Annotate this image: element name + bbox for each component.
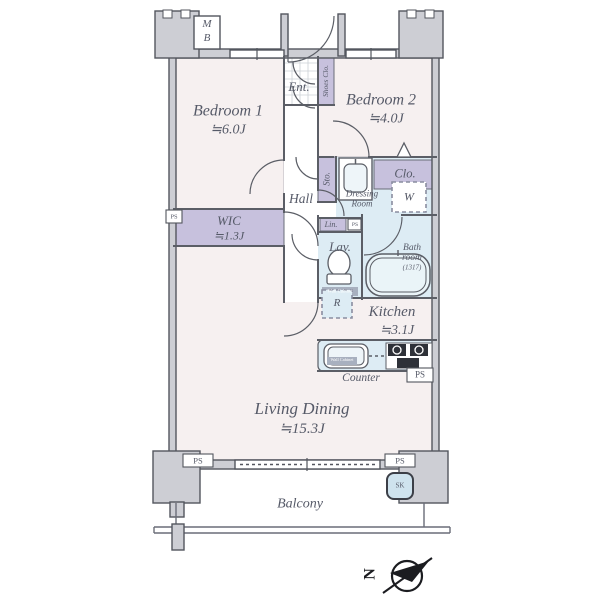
bathroom-size: (1317) xyxy=(403,264,422,271)
bedroom2-size: ≒4.0J xyxy=(368,113,403,128)
wic-name: WIC xyxy=(217,214,241,228)
wall-east xyxy=(432,49,439,469)
slop-sink-label: SK xyxy=(396,482,405,489)
toilet-tank xyxy=(327,274,351,284)
stove-grill xyxy=(397,358,419,368)
hall-label: Hall xyxy=(289,192,313,206)
meter-box-label-m: M xyxy=(202,19,211,31)
counter-label: Counter xyxy=(342,372,380,384)
living-dining-size: ≒15.3J xyxy=(279,422,325,438)
dressing-room-label-2: Room xyxy=(352,199,373,208)
compass-north-icon xyxy=(383,558,432,593)
fridge-label: R xyxy=(334,298,341,310)
wall-west xyxy=(169,49,176,469)
pillar-top-right xyxy=(399,11,443,58)
wic-size: ≒1.3J xyxy=(214,230,244,243)
ps-label-lin: PS xyxy=(351,222,357,228)
entrance-label: Ent. xyxy=(288,80,309,94)
shoes-closet-label: Shoes Clo. xyxy=(322,65,330,97)
ps-label-wic: PS xyxy=(170,213,177,220)
lav-wall-cabinet-label: Wall Cabinet xyxy=(327,289,352,294)
ps-label-bottom-left: PS xyxy=(193,456,202,465)
storage-label: Sto. xyxy=(322,172,331,186)
wall-north xyxy=(170,49,438,58)
closet-label: Clo. xyxy=(394,167,415,180)
lavatory-label: Lav. xyxy=(329,240,351,254)
balcony-label: Balcony xyxy=(277,498,323,513)
floor-plan: M B Ent. Shoes Clo. Bedroom 1 ≒6.0J Bedr… xyxy=(0,0,600,600)
living-dining-name: Living Dining xyxy=(255,400,350,418)
compass-north-label: N xyxy=(363,568,380,580)
kitchen-wall-cabinet-label: Wall Cabinet xyxy=(331,359,354,364)
bedroom1-size: ≒6.0J xyxy=(210,124,245,139)
kitchen-name: Kitchen xyxy=(369,305,416,321)
meter-box-label-b: B xyxy=(204,33,211,45)
kitchen-size: ≒3.1J xyxy=(380,323,414,337)
ps-label-kitchen: PS xyxy=(415,370,425,379)
bedroom2-name: Bedroom 2 xyxy=(346,93,416,110)
washer-label: W xyxy=(404,191,414,204)
pillar-tab xyxy=(170,502,184,517)
entry-bay-wall-right xyxy=(338,14,345,56)
ps-label-bottom-right: PS xyxy=(395,456,404,465)
bedroom1-name: Bedroom 1 xyxy=(193,104,263,121)
balcony-divider xyxy=(172,524,184,550)
linen-label: Lin. xyxy=(325,220,338,228)
pillar-top-left xyxy=(155,11,199,58)
